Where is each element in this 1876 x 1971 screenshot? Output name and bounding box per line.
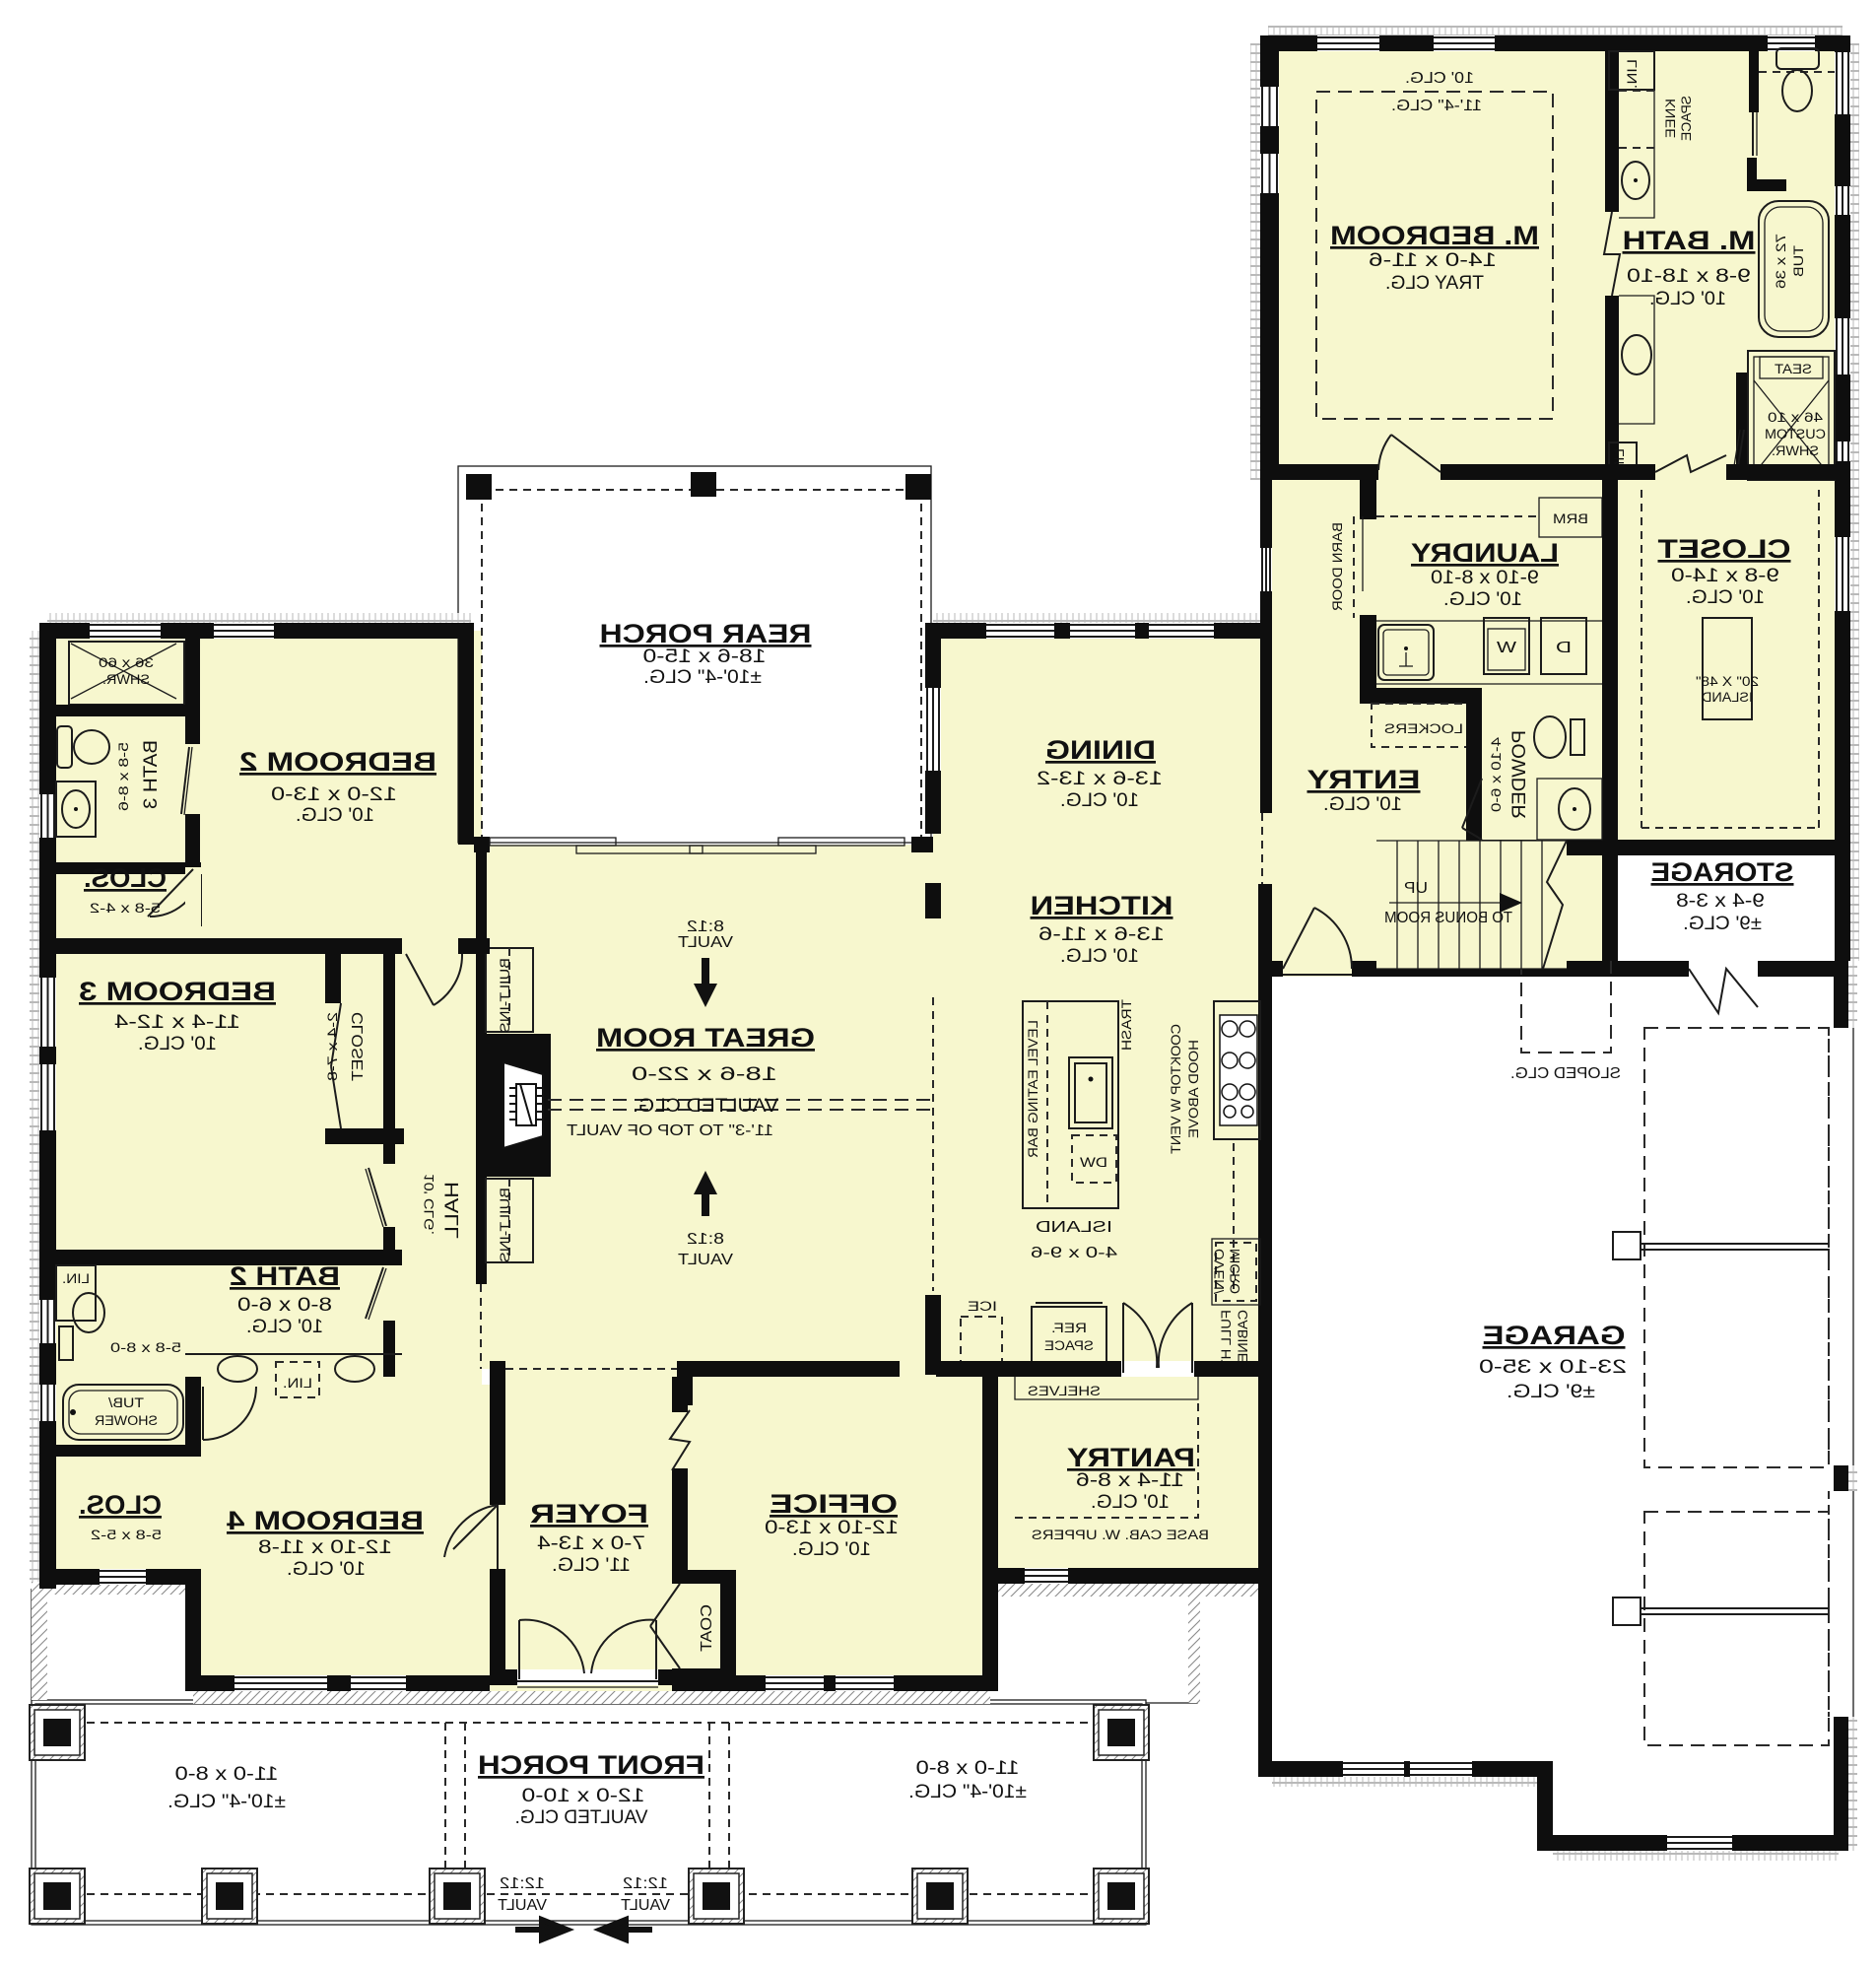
svg-text:BASE CAB. W. UPPERS: BASE CAB. W. UPPERS	[1032, 1528, 1209, 1542]
svg-text:11' CLG.: 11' CLG.	[552, 1555, 631, 1576]
svg-text:TO BONUS ROOM: TO BONUS ROOM	[1384, 910, 1512, 926]
svg-text:5-8 x 5-2: 5-8 x 5-2	[91, 1528, 162, 1542]
svg-text:10' CLG.: 10' CLG.	[138, 1034, 217, 1054]
svg-text:TUB/: TUB/	[108, 1395, 144, 1410]
svg-text:BEDROOM 4: BEDROOM 4	[227, 1506, 424, 1535]
svg-text:±10'-4" CLG.: ±10'-4" CLG.	[643, 667, 762, 688]
svg-text:8:12: 8:12	[687, 1231, 724, 1248]
svg-text:LAUNDRY: LAUNDRY	[1411, 538, 1559, 568]
svg-text:GARAGE: GARAGE	[1483, 1321, 1626, 1350]
svg-text:11-0 x 8-0: 11-0 x 8-0	[916, 1758, 1020, 1779]
svg-text:9-8 x 18-10: 9-8 x 18-10	[1627, 266, 1751, 287]
svg-text:CLOS.: CLOS.	[79, 1490, 162, 1520]
svg-text:DINING: DINING	[1045, 735, 1156, 765]
svg-text:11'-3" TO TOP OF VAULT: 11'-3" TO TOP OF VAULT	[567, 1122, 773, 1139]
svg-text:BUILT-INS: BUILT-INS	[498, 958, 512, 1033]
svg-text:ISLAND: ISLAND	[1702, 690, 1753, 705]
svg-text:12-0 x 10-0: 12-0 x 10-0	[522, 1786, 645, 1806]
svg-text:CUSTOM: CUSTOM	[1765, 427, 1826, 442]
svg-text:VAULT: VAULT	[621, 1897, 670, 1914]
svg-text:SHWR.: SHWR.	[1772, 443, 1819, 458]
svg-text:BEDROOM 2: BEDROOM 2	[239, 747, 436, 777]
svg-text:LOCKERS: LOCKERS	[1384, 721, 1463, 736]
svg-text:12-10 x 13-0: 12-10 x 13-0	[765, 1518, 899, 1538]
svg-text:VAULTED CLG.: VAULTED CLG.	[515, 1807, 648, 1828]
svg-text:10' CLG.: 10' CLG.	[1405, 70, 1474, 87]
svg-text:REAR PORCH: REAR PORCH	[600, 619, 812, 648]
svg-text:14-0 x 11-6: 14-0 x 11-6	[1369, 250, 1497, 271]
svg-text:POWDER: POWDER	[1509, 730, 1530, 819]
svg-text:BUILT-INS: BUILT-INS	[498, 1188, 512, 1262]
svg-text:SHWR.: SHWR.	[102, 672, 150, 687]
svg-text:10' CLG.: 10' CLG.	[1060, 946, 1139, 967]
svg-text:10' CLG.: 10' CLG.	[287, 1559, 366, 1580]
svg-text:5-8 x 8-0: 5-8 x 8-0	[110, 1340, 181, 1355]
svg-text:12:12: 12:12	[500, 1875, 545, 1892]
svg-text:COAT: COAT	[699, 1604, 715, 1652]
svg-text:BRM: BRM	[1553, 511, 1588, 526]
svg-text:SPACE: SPACE	[1044, 1338, 1094, 1353]
svg-text:UP: UP	[1404, 880, 1428, 897]
svg-text:±9' CLG.: ±9' CLG.	[1507, 1382, 1595, 1402]
svg-text:CLOSET: CLOSET	[350, 1012, 367, 1081]
svg-text:VAULTED CLG.: VAULTED CLG.	[633, 1096, 778, 1117]
svg-text:12-0 x 13-0: 12-0 x 13-0	[271, 784, 397, 805]
svg-text:LEVEL EATING BAR: LEVEL EATING BAR	[1026, 1020, 1040, 1158]
svg-text:±10'-4" CLG.: ±10'-4" CLG.	[908, 1782, 1027, 1802]
svg-text:TRAY CLG.: TRAY CLG.	[1385, 273, 1484, 294]
svg-text:BATH 3: BATH 3	[141, 740, 162, 809]
svg-text:11-4 x 12-4: 11-4 x 12-4	[113, 1012, 240, 1033]
svg-text:46 x 10: 46 x 10	[1768, 410, 1823, 425]
svg-text:LIN.: LIN.	[1625, 59, 1640, 89]
svg-text:VAULT: VAULT	[678, 934, 733, 951]
svg-text:SPACE: SPACE	[1679, 96, 1694, 141]
svg-text:HALL: HALL	[442, 1182, 463, 1239]
svg-text:CLOS.: CLOS.	[84, 863, 167, 893]
svg-text:18-6 x 15-0: 18-6 x 15-0	[643, 646, 767, 667]
svg-text:5-8 x 4-2: 5-8 x 4-2	[90, 901, 161, 916]
svg-text:10' CLG.: 10' CLG.	[1323, 794, 1402, 815]
svg-text:5-8 x 8-6: 5-8 x 8-6	[116, 742, 131, 811]
svg-text:11-4 x 8-6: 11-4 x 8-6	[1076, 1470, 1184, 1491]
svg-text:SLOPED CLG.: SLOPED CLG.	[1510, 1065, 1621, 1082]
svg-text:OFFICE: OFFICE	[770, 1489, 898, 1519]
svg-text:12:12: 12:12	[623, 1875, 668, 1892]
svg-text:VAULT: VAULT	[678, 1252, 733, 1268]
svg-text:10' CLG.: 10' CLG.	[1649, 289, 1726, 309]
svg-text:4-0 x 9-6: 4-0 x 9-6	[1031, 1245, 1117, 1261]
svg-text:DW: DW	[1080, 1155, 1107, 1170]
svg-text:M. BATH: M. BATH	[1623, 226, 1756, 255]
svg-text:FRONT PORCH: FRONT PORCH	[478, 1750, 704, 1780]
svg-text:MICRO: MICRO	[1228, 1249, 1242, 1294]
svg-text:10' CLG.: 10' CLG.	[1686, 587, 1765, 608]
svg-text:10' CLG.: 10' CLG.	[1443, 589, 1522, 610]
svg-text:12-10 x 11-8: 12-10 x 11-8	[258, 1537, 392, 1558]
svg-text:20" X 48": 20" X 48"	[1696, 674, 1759, 689]
svg-text:11-0 x 8-0: 11-0 x 8-0	[175, 1764, 279, 1785]
svg-text:LIN.: LIN.	[62, 1271, 90, 1286]
svg-text:10' CLG.: 10' CLG.	[246, 1317, 323, 1337]
svg-text:VAULT: VAULT	[498, 1897, 547, 1914]
svg-text:13-6 x 13-2: 13-6 x 13-2	[1037, 769, 1163, 789]
svg-text:PANTRY: PANTRY	[1067, 1443, 1195, 1472]
svg-text:7-0 x 13-4: 7-0 x 13-4	[536, 1533, 645, 1554]
svg-text:CLOSET: CLOSET	[1657, 534, 1791, 564]
svg-text:OVEN/: OVEN/	[1212, 1249, 1227, 1294]
svg-text:±10'-4" CLG.: ±10'-4" CLG.	[167, 1792, 286, 1812]
svg-text:10' CLG.: 10' CLG.	[422, 1174, 436, 1235]
svg-text:BATH 2: BATH 2	[230, 1261, 340, 1291]
svg-text:ISLAND: ISLAND	[1036, 1219, 1112, 1236]
svg-text:ENTRY: ENTRY	[1307, 765, 1421, 794]
svg-text:72 x 36: 72 x 36	[1774, 234, 1788, 289]
svg-text:D: D	[1556, 640, 1572, 656]
svg-text:KNEE: KNEE	[1663, 99, 1678, 138]
svg-text:8:12: 8:12	[687, 918, 724, 935]
svg-text:8-0 x 6-0: 8-0 x 6-0	[237, 1295, 332, 1316]
svg-text:REF.: REF.	[1051, 1321, 1087, 1335]
svg-text:2-4 x 7-8: 2-4 x 7-8	[325, 1012, 340, 1081]
svg-text:±9' CLG.: ±9' CLG.	[1683, 914, 1762, 934]
svg-text:10' CLG.: 10' CLG.	[296, 805, 374, 826]
svg-text:M. BEDROOM: M. BEDROOM	[1330, 221, 1539, 250]
svg-text:KITCHEN: KITCHEN	[1031, 891, 1173, 920]
svg-text:TUB: TUB	[1791, 245, 1806, 277]
svg-text:SEAT: SEAT	[1775, 362, 1812, 376]
svg-text:COOKTOP W VENT: COOKTOP W VENT	[1169, 1024, 1183, 1154]
svg-text:11'-4" CLG.: 11'-4" CLG.	[1391, 98, 1482, 114]
svg-text:TRASH: TRASH	[1119, 999, 1134, 1051]
svg-text:9-8 x 14-0: 9-8 x 14-0	[1671, 566, 1779, 586]
svg-text:GREAT ROOM: GREAT ROOM	[596, 1023, 815, 1053]
svg-text:10' CLG.: 10' CLG.	[792, 1539, 871, 1560]
svg-text:STORAGE: STORAGE	[1651, 857, 1794, 887]
svg-text:13-6 x 11-6: 13-6 x 11-6	[1038, 924, 1165, 945]
svg-text:18-6 x 22-0: 18-6 x 22-0	[632, 1064, 777, 1085]
svg-text:SHELVES: SHELVES	[1028, 1384, 1101, 1398]
svg-text:HOOD ABOVE: HOOD ABOVE	[1186, 1040, 1201, 1138]
svg-text:9-10 x 8-10: 9-10 x 8-10	[1431, 568, 1539, 588]
svg-text:10' CLG.: 10' CLG.	[1060, 790, 1139, 811]
svg-text:9-4 x 3-8: 9-4 x 3-8	[1676, 891, 1765, 912]
svg-text:BEDROOM 3: BEDROOM 3	[79, 977, 276, 1006]
svg-text:ICE: ICE	[968, 1299, 997, 1314]
svg-text:BARN DOOR: BARN DOOR	[1330, 522, 1345, 611]
svg-text:LIN.: LIN.	[283, 1376, 312, 1391]
svg-text:10' CLG.: 10' CLG.	[1091, 1492, 1170, 1513]
svg-text:23-10 x 35-0: 23-10 x 35-0	[1479, 1357, 1627, 1378]
svg-text:SHOWER: SHOWER	[95, 1413, 158, 1428]
svg-text:W: W	[1496, 640, 1516, 656]
svg-text:36 x 60: 36 x 60	[99, 655, 154, 670]
svg-text:4-10 x 6-0: 4-10 x 6-0	[1489, 737, 1504, 812]
svg-text:FOYER: FOYER	[530, 1499, 648, 1529]
